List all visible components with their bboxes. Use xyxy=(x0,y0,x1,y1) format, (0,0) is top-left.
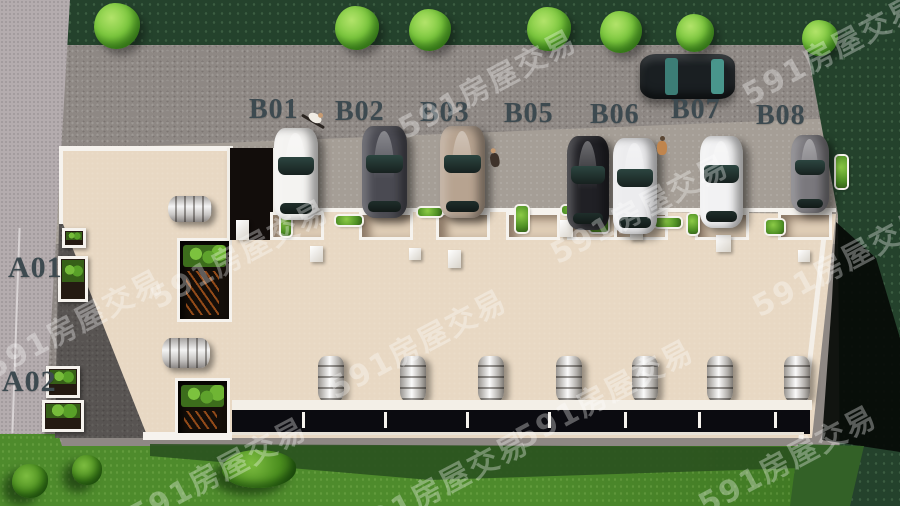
water-tank xyxy=(478,356,504,402)
balcony-planting xyxy=(65,231,83,245)
parking-label-b02: B02 xyxy=(335,96,385,128)
skylight xyxy=(448,250,461,268)
car-windshield xyxy=(444,155,481,172)
skylight xyxy=(716,235,731,252)
roof-planter xyxy=(516,206,528,232)
skylight xyxy=(310,246,323,262)
person-walking xyxy=(656,136,670,156)
parapet-south xyxy=(232,400,812,410)
water-tank xyxy=(784,356,810,402)
courtyard xyxy=(175,378,230,436)
water-tank xyxy=(707,356,733,402)
parking-label-b05: B05 xyxy=(504,98,554,130)
parking-label-b01: B01 xyxy=(249,94,299,126)
roof-planter xyxy=(336,216,362,225)
grass-strip-top xyxy=(50,0,900,45)
car-rear-window xyxy=(368,201,401,212)
wall-divider xyxy=(698,412,701,428)
bush xyxy=(12,464,48,498)
car-on-road xyxy=(640,54,735,99)
roof-planter xyxy=(688,214,698,234)
courtyard-railing xyxy=(184,411,217,429)
wall-divider xyxy=(624,412,627,428)
parapet-left xyxy=(59,149,63,227)
person-body xyxy=(657,141,667,155)
balcony-a01 xyxy=(62,228,86,248)
parapet-top xyxy=(59,146,233,151)
wall-divider xyxy=(774,412,777,428)
person-head xyxy=(660,136,665,141)
car-rear-window xyxy=(706,211,737,222)
roof-planter xyxy=(766,220,784,234)
car-b03 xyxy=(440,126,485,218)
parking-bay xyxy=(778,212,832,240)
unit-label-a01: A01 xyxy=(8,251,63,285)
site-plan-render: B01 B02 B03 B05 B06 B07 B08 A01 A02 591房… xyxy=(0,0,900,506)
roof-planter xyxy=(418,208,442,216)
balcony-a02 xyxy=(42,400,84,432)
water-tank xyxy=(162,338,210,368)
skylight xyxy=(409,248,421,260)
car-windshield xyxy=(571,166,605,184)
car-b02 xyxy=(362,126,407,218)
car-rear-window xyxy=(446,201,479,212)
wall-divider xyxy=(384,412,387,428)
car-windshield xyxy=(366,155,403,172)
parking-label-b06: B06 xyxy=(590,99,640,131)
car-windshield xyxy=(795,160,825,175)
person-body xyxy=(489,152,500,167)
car-rear-window xyxy=(711,59,723,94)
wall-divider xyxy=(466,412,469,428)
roof-planter xyxy=(836,156,847,188)
balcony-planting xyxy=(45,403,81,429)
car-rear-window xyxy=(797,199,823,208)
parking-label-b07: B07 xyxy=(671,94,721,126)
water-tank xyxy=(168,196,212,222)
car-b08 xyxy=(791,135,829,213)
car-windshield xyxy=(665,58,678,95)
courtyard-plants xyxy=(181,385,224,407)
car-windshield xyxy=(278,157,314,174)
bush xyxy=(72,455,102,485)
